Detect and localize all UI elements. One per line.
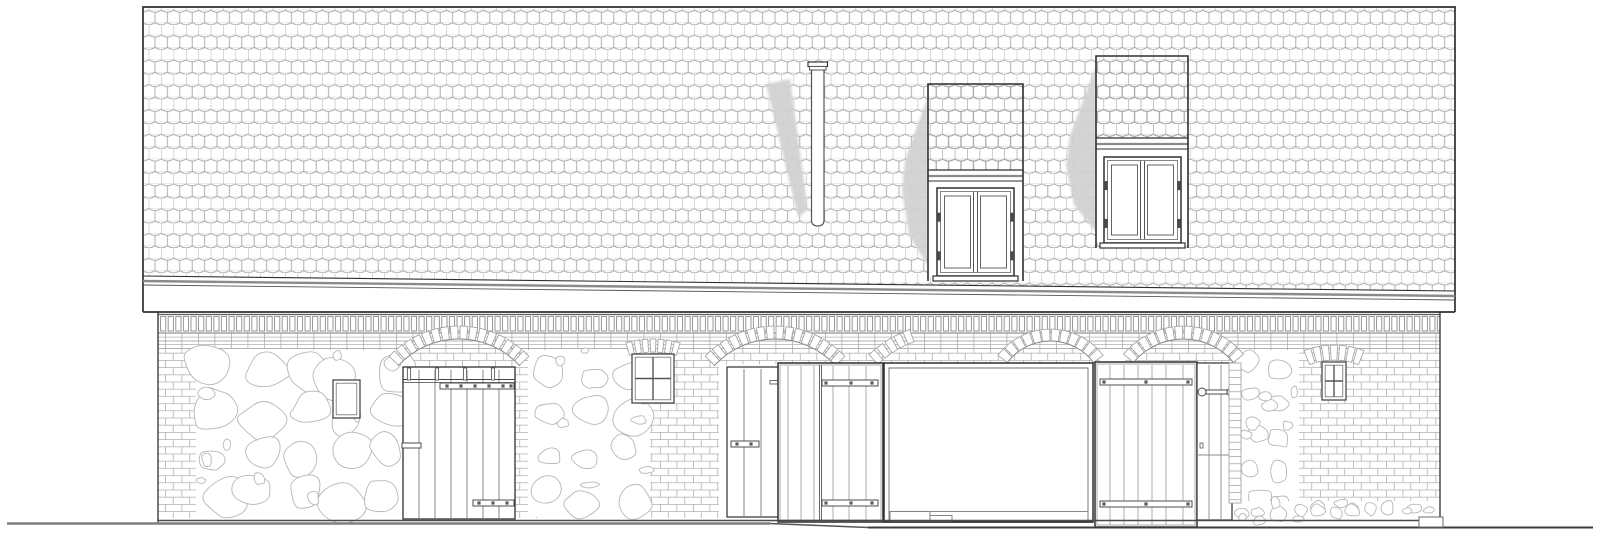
facade-wall: [158, 312, 1440, 527]
barn-elevation-drawing: [0, 0, 1600, 537]
plank-door-left: [402, 367, 515, 519]
sliding-shutter-right: [1095, 362, 1197, 527]
plank-door-right: [1197, 363, 1241, 520]
sliding-shutter-left: [778, 363, 883, 522]
dormer-window-right: [1096, 56, 1188, 248]
flue-pipe: [808, 62, 828, 226]
dormer-window-left: [928, 84, 1023, 281]
drawing-canvas: [0, 0, 1600, 537]
central-glazed-opening: [884, 363, 1093, 522]
